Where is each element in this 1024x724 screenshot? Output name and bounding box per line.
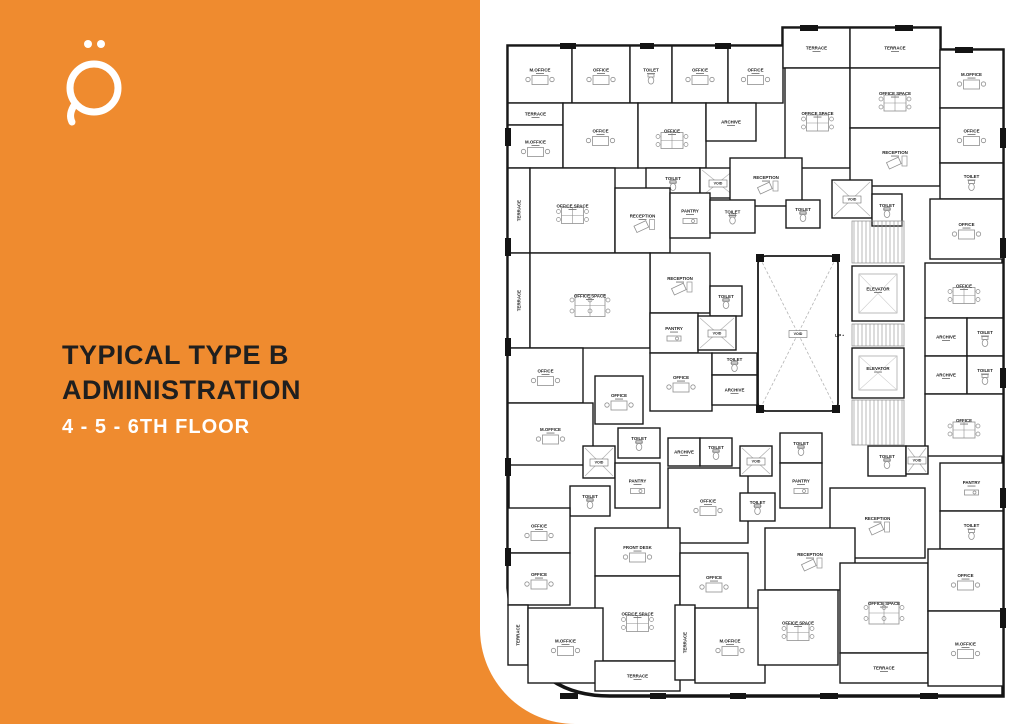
svg-text:TOILET: TOILET — [718, 294, 734, 299]
room-office: OFFICE — [680, 553, 748, 611]
room-office: OFFICE — [563, 103, 638, 168]
wall-pier — [1000, 368, 1006, 388]
svg-text:ARCHIVE: ARCHIVE — [674, 450, 694, 455]
svg-text:OFFICE: OFFICE — [958, 222, 974, 227]
room-void: VOID — [698, 316, 736, 350]
room-toilet: TOILET — [940, 163, 1003, 199]
room-toilet: TOILET — [868, 446, 906, 476]
svg-text:TERRACE: TERRACE — [873, 666, 894, 671]
wall-pier — [820, 693, 838, 699]
svg-text:M.OFFICE: M.OFFICE — [720, 639, 741, 644]
svg-text:TOILET: TOILET — [708, 445, 724, 450]
svg-text:PANTRY: PANTRY — [963, 480, 981, 485]
svg-text:VOID: VOID — [713, 332, 722, 336]
svg-text:TOILET: TOILET — [879, 203, 895, 208]
svg-text:OFFICE: OFFICE — [700, 499, 716, 504]
svg-text:OFFICE: OFFICE — [673, 375, 689, 380]
room-office: OFFICE — [572, 46, 630, 103]
svg-text:TOILET: TOILET — [631, 436, 647, 441]
room-toilet: TOILET — [618, 428, 660, 458]
room-terrace: TERRACE — [783, 28, 850, 68]
wall-pier — [640, 43, 654, 49]
svg-text:ELEVATOR: ELEVATOR — [866, 287, 890, 292]
room-office: OFFICE — [728, 46, 783, 103]
room-reception: RECEPTION — [730, 158, 802, 206]
svg-text:OFFICE: OFFICE — [531, 524, 547, 529]
wall-pier — [756, 405, 764, 413]
room-m-office: M.OFFICE — [940, 50, 1003, 108]
wall-pier — [832, 254, 840, 262]
svg-text:PANTRY: PANTRY — [681, 209, 699, 214]
room-m-office: M.OFFICE — [508, 46, 572, 103]
svg-text:TERRACE: TERRACE — [683, 632, 688, 653]
room-toilet: TOILET — [570, 486, 610, 516]
room-reception: RECEPTION — [615, 188, 670, 253]
room-m-office: M.OFFICE — [695, 608, 765, 683]
wall-pier — [560, 43, 576, 49]
room-office-space: OFFICE SPACE — [758, 590, 838, 665]
svg-text:TOILET: TOILET — [977, 368, 993, 373]
svg-text:OFFICE SPACE: OFFICE SPACE — [879, 91, 911, 96]
room-office: OFFICE — [928, 549, 1003, 611]
svg-text:TERRACE: TERRACE — [516, 624, 521, 645]
svg-text:TOILET: TOILET — [977, 330, 993, 335]
svg-text:ARCHIVE: ARCHIVE — [936, 373, 956, 378]
svg-text:VOID: VOID — [848, 198, 857, 202]
svg-text:OFFICE: OFFICE — [692, 68, 708, 73]
svg-text:M.OFFICE: M.OFFICE — [525, 140, 546, 145]
room-office-space: OFFICE SPACE — [840, 563, 928, 653]
room-archive: ARCHIVE — [925, 318, 967, 356]
room-m-office: M.OFFICE — [928, 611, 1003, 686]
svg-text:RECEPTION: RECEPTION — [667, 276, 693, 281]
svg-text:OFFICE: OFFICE — [956, 284, 972, 289]
room-toilet: TOILET — [780, 433, 822, 463]
svg-text:OFFICE: OFFICE — [963, 129, 979, 134]
svg-text:ARCHIVE: ARCHIVE — [721, 120, 741, 125]
room-m-office: M.OFFICE — [508, 403, 593, 465]
room-office-space: OFFICE SPACE — [850, 68, 940, 128]
room-elevator: ELEVATOR — [852, 348, 904, 398]
room-elevator: ELEVATOR — [852, 266, 904, 321]
svg-text:TERRACE: TERRACE — [525, 112, 546, 117]
room-m-office: M.OFFICE — [528, 608, 603, 683]
floor-plan: M.OFFICEOFFICETOILETOFFICEOFFICETERRACET… — [500, 8, 1012, 700]
slide: TYPICAL TYPE B ADMINISTRATION 4 - 5 - 6T… — [0, 0, 1024, 724]
svg-text:RECEPTION: RECEPTION — [753, 175, 779, 180]
room-office: OFFICE — [925, 263, 1003, 318]
room-office: OFFICE — [925, 394, 1003, 456]
svg-text:OFFICE SPACE: OFFICE SPACE — [782, 621, 814, 626]
svg-text:PANTRY: PANTRY — [665, 326, 683, 331]
svg-text:TERRACE: TERRACE — [517, 290, 522, 311]
room-toilet: TOILET — [740, 493, 775, 521]
svg-text:OFFICE SPACE: OFFICE SPACE — [556, 204, 588, 209]
room-terrace: TERRACE — [675, 605, 695, 680]
room-toilet: TOILET — [967, 356, 1003, 394]
svg-text:PANTRY: PANTRY — [792, 479, 810, 484]
wall-pier — [756, 254, 764, 262]
brand-logo-icon — [58, 30, 128, 130]
svg-text:VOID: VOID — [794, 332, 803, 336]
up-label: UP • — [835, 333, 845, 338]
svg-text:OFFICE SPACE: OFFICE SPACE — [801, 111, 833, 116]
svg-text:VOID: VOID — [595, 461, 604, 465]
wall-pier — [955, 47, 973, 53]
svg-text:TOILET: TOILET — [643, 68, 659, 73]
wall-pier — [920, 693, 938, 699]
wall-pier — [505, 458, 511, 476]
svg-text:TOILET: TOILET — [727, 357, 743, 362]
room-void: VOID — [583, 446, 615, 478]
room-terrace: TERRACE — [508, 605, 528, 665]
room-office: OFFICE — [508, 553, 570, 605]
svg-text:OFFICE SPACE: OFFICE SPACE — [868, 601, 900, 606]
room-office: OFFICE — [940, 108, 1003, 163]
wall-pier — [560, 693, 578, 699]
room-void: VOID — [906, 446, 928, 474]
svg-text:ARCHIVE: ARCHIVE — [936, 335, 956, 340]
room-m-office: M.OFFICE — [508, 125, 563, 168]
svg-text:TOILET: TOILET — [793, 441, 809, 446]
room-toilet: TOILET — [700, 438, 732, 466]
wall-pier — [730, 693, 746, 699]
room-office: OFFICE — [595, 376, 643, 424]
svg-text:TOILET: TOILET — [750, 500, 766, 505]
stair-run — [852, 324, 904, 346]
title-line-2: ADMINISTRATION — [62, 373, 462, 408]
svg-text:ARCHIVE: ARCHIVE — [725, 388, 745, 393]
room-office-space: OFFICE SPACE — [530, 253, 650, 348]
room-pantry: PANTRY — [780, 463, 822, 508]
svg-text:OFFICE: OFFICE — [747, 68, 763, 73]
room-terrace: TERRACE — [850, 28, 940, 68]
room-terrace: TERRACE — [508, 253, 530, 348]
room-archive: ARCHIVE — [706, 103, 756, 141]
room-void: VOID — [758, 256, 838, 411]
svg-text:FRONT DESK: FRONT DESK — [623, 545, 652, 550]
room-pantry: PANTRY — [940, 463, 1003, 511]
svg-text:VOID: VOID — [913, 459, 922, 463]
svg-text:OFFICE: OFFICE — [593, 68, 609, 73]
svg-text:TOILET: TOILET — [725, 210, 741, 215]
svg-text:TERRACE: TERRACE — [884, 46, 905, 51]
room-toilet: TOILET — [710, 286, 742, 316]
wall-pier — [800, 25, 818, 31]
room-toilet: TOILET — [630, 46, 672, 103]
room-archive: ARCHIVE — [668, 438, 700, 466]
svg-text:M.OFFICE: M.OFFICE — [955, 642, 976, 647]
wall-pier — [1000, 608, 1006, 628]
room-pantry: PANTRY — [615, 463, 660, 508]
svg-text:TERRACE: TERRACE — [806, 46, 827, 51]
svg-text:TOILET: TOILET — [582, 494, 598, 499]
svg-text:TOILET: TOILET — [964, 523, 980, 528]
svg-text:OFFICE: OFFICE — [956, 418, 972, 423]
svg-text:OFFICE: OFFICE — [957, 573, 973, 578]
room-office-space: OFFICE SPACE — [785, 68, 850, 168]
room-office: OFFICE — [638, 103, 706, 168]
room-archive: ARCHIVE — [925, 356, 967, 394]
svg-text:OFFICE: OFFICE — [664, 129, 680, 134]
room-toilet: TOILET — [786, 200, 820, 228]
wall-pier — [505, 548, 511, 566]
wall-pier — [505, 238, 511, 256]
room-office: OFFICE — [508, 508, 570, 553]
room-void: VOID — [832, 180, 872, 218]
room-terrace: TERRACE — [595, 661, 680, 691]
title-block: TYPICAL TYPE B ADMINISTRATION 4 - 5 - 6T… — [62, 338, 462, 439]
svg-text:TERRACE: TERRACE — [517, 200, 522, 221]
wall-pier — [650, 693, 666, 699]
wall-pier — [505, 338, 511, 356]
svg-text:RECEPTION: RECEPTION — [865, 516, 891, 521]
svg-text:OFFICE: OFFICE — [706, 575, 722, 580]
room-void: VOID — [740, 446, 772, 476]
room-terrace: TERRACE — [508, 103, 563, 125]
svg-text:VOID: VOID — [714, 182, 723, 186]
wall-pier — [895, 25, 913, 31]
svg-text:OFFICE: OFFICE — [592, 129, 608, 134]
wall-pier — [505, 128, 511, 146]
svg-text:RECEPTION: RECEPTION — [630, 214, 656, 219]
room-toilet: TOILET — [710, 200, 755, 233]
room-office-space: OFFICE SPACE — [530, 168, 615, 253]
room-terrace: TERRACE — [840, 653, 928, 683]
svg-text:M.OFFICE: M.OFFICE — [961, 72, 982, 77]
svg-text:M.OFFICE: M.OFFICE — [555, 639, 576, 644]
svg-text:OFFICE: OFFICE — [611, 393, 627, 398]
svg-text:TOILET: TOILET — [665, 176, 681, 181]
svg-text:M.OFFICE: M.OFFICE — [530, 68, 551, 73]
wall-pier — [715, 43, 731, 49]
svg-text:OFFICE SPACE: OFFICE SPACE — [574, 294, 606, 299]
room-pantry: PANTRY — [650, 313, 698, 353]
svg-text:VOID: VOID — [752, 460, 761, 464]
room-terrace: TERRACE — [508, 168, 530, 253]
svg-text:TOILET: TOILET — [964, 174, 980, 179]
svg-text:TOILET: TOILET — [879, 454, 895, 459]
svg-text:OFFICE: OFFICE — [531, 572, 547, 577]
wall-pier — [832, 405, 840, 413]
wall-pier — [1000, 488, 1006, 508]
svg-text:PANTRY: PANTRY — [629, 479, 647, 484]
floor-subtitle: 4 - 5 - 6TH FLOOR — [62, 416, 462, 439]
title-line-1: TYPICAL TYPE B — [62, 338, 462, 373]
svg-text:TOILET: TOILET — [795, 207, 811, 212]
wall-pier — [1000, 238, 1006, 258]
stair-run — [852, 221, 904, 263]
room-toilet: TOILET — [712, 353, 757, 375]
room-office: OFFICE — [508, 348, 583, 403]
room-reception: RECEPTION — [850, 128, 940, 186]
room-pantry: PANTRY — [670, 193, 710, 238]
room-archive: ARCHIVE — [712, 375, 757, 405]
svg-text:RECEPTION: RECEPTION — [797, 552, 823, 557]
svg-text:RECEPTION: RECEPTION — [882, 150, 908, 155]
stair-run — [852, 400, 904, 445]
svg-text:M.OFFICE: M.OFFICE — [540, 427, 561, 432]
room-office: OFFICE — [672, 46, 728, 103]
room-toilet: TOILET — [940, 511, 1003, 549]
room-front-desk: FRONT DESK — [595, 528, 680, 576]
svg-text:TERRACE: TERRACE — [627, 674, 648, 679]
room-toilet: TOILET — [967, 318, 1003, 356]
svg-text:ELEVATOR: ELEVATOR — [866, 366, 890, 371]
svg-text:OFFICE SPACE: OFFICE SPACE — [621, 612, 653, 617]
svg-text:OFFICE: OFFICE — [537, 369, 553, 374]
wall-pier — [1000, 128, 1006, 148]
room-office-space: OFFICE SPACE — [595, 576, 680, 661]
room-office: OFFICE — [650, 353, 712, 411]
room-reception: RECEPTION — [650, 253, 710, 313]
room-office: OFFICE — [930, 199, 1003, 259]
